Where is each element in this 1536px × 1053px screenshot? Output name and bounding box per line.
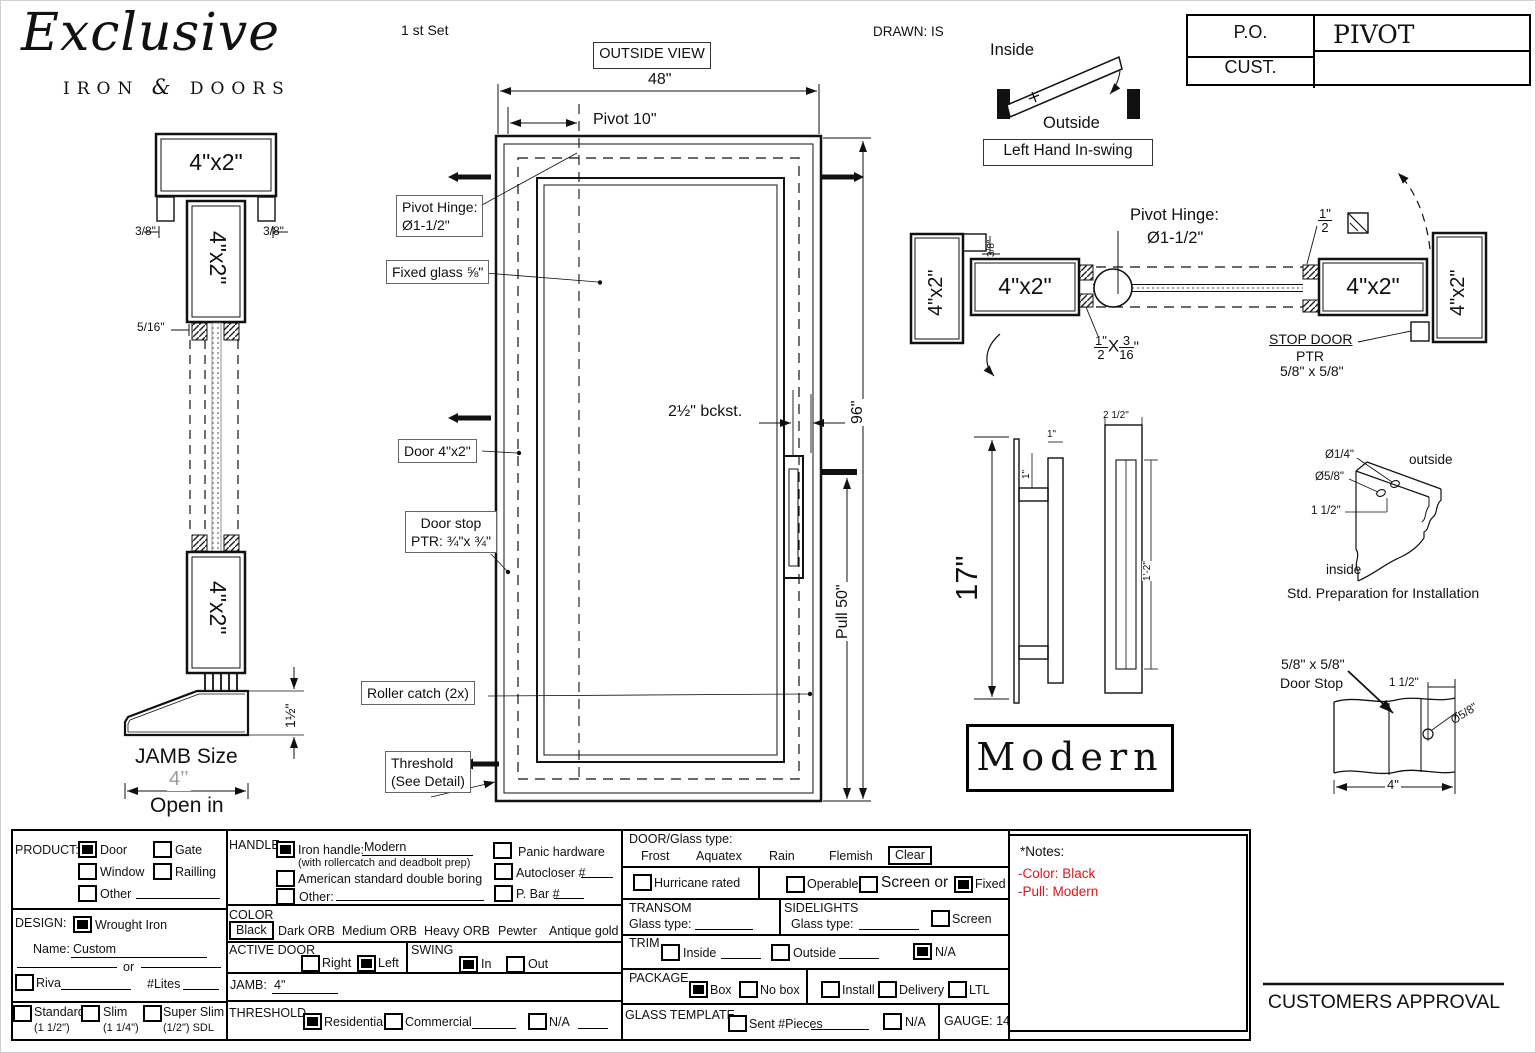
form-section-frame-type: Standard (1 1/2") Slim (1 1/4") Super Sl… (11, 1003, 228, 1041)
pull-detail-linework (974, 417, 1158, 703)
checkbox-iron-handle[interactable] (276, 841, 295, 858)
label-trim-na: N/A (935, 945, 956, 959)
label-no-box: No box (760, 983, 800, 997)
sidelights-label: SIDELIGHTS (784, 901, 858, 915)
checkbox-wrought-iron[interactable] (73, 916, 92, 933)
jamb-bottom-size: 4"x2" (204, 581, 231, 634)
label-product-other: Other (100, 887, 131, 901)
checkbox-american-boring[interactable] (276, 870, 295, 887)
color-dark-orb[interactable]: Dark ORB (278, 924, 335, 938)
jamb-dim-left: 3/8" (135, 224, 156, 238)
jamb-threshold-dim: 1½" (282, 704, 298, 728)
plan-hinge-line2: Ø1-1/2" (1147, 229, 1203, 248)
elevation-pull-dim: Pull 50" (834, 582, 852, 641)
checkbox-screen-or[interactable] (859, 876, 878, 893)
checkbox-gate[interactable] (153, 841, 172, 858)
form-section-glass-template: GLASS TEMPLATE Sent #Pieces N/A (621, 1003, 940, 1041)
label-out: Out (528, 957, 548, 971)
swing-inside-label: Inside (990, 41, 1034, 60)
swing-label: SWING (411, 943, 453, 957)
stop-detail-label1: 5/8" x 5/8" (1281, 656, 1345, 672)
roller-catch-callout: Roller catch (2x) (361, 681, 475, 705)
swing-caption: Left Hand In-swing (983, 139, 1153, 166)
iron-handle-note: (with rollercatch and deadbolt prep) (298, 857, 470, 869)
design-name-label: Name: (33, 942, 70, 956)
ptr-frac2-d: 16 (1119, 348, 1133, 361)
label-super-slim: Super Slim (163, 1005, 224, 1019)
form-section-product: PRODUCT: Door Gate Window Railling Other (11, 829, 228, 910)
logo-title: Exclusive (21, 3, 280, 63)
checkbox-super-slim[interactable] (143, 1005, 162, 1022)
transom-label: TRANSOM (629, 901, 692, 915)
prep-hole-big-dim: Ø5/8" (1315, 471, 1344, 483)
form-section-jamb: JAMB: 4" (226, 972, 623, 1002)
jamb-dim-glass: 5/16" (137, 320, 165, 334)
plan-jamb-left-size: 4"x2" (925, 270, 948, 316)
color-label: COLOR (229, 908, 273, 922)
stop-detail-linework (1334, 671, 1457, 794)
or-divider-right (141, 966, 221, 968)
door-size-callout: Door 4"x2" (398, 439, 477, 463)
jamb-label: JAMB: (230, 978, 267, 992)
checkbox-hurricane[interactable] (633, 874, 652, 891)
notes-label: *Notes: (1020, 844, 1064, 859)
glass-rain[interactable]: Rain (769, 849, 795, 863)
label-screen-or: Screen or (881, 874, 948, 892)
label-residential: Residential (324, 1015, 386, 1029)
fixed-glass-callout: Fixed glass ⅝" (386, 260, 489, 284)
plan-dim-38: 3/8" (986, 240, 997, 257)
threshold-label: THRESHOLD (229, 1006, 306, 1020)
label-door: Door (100, 843, 127, 857)
glass-template-label: GLASS TEMPLATE (625, 1008, 735, 1022)
checkbox-install[interactable] (821, 981, 840, 998)
trim-label: TRIM (629, 936, 660, 950)
checkbox-commercial[interactable] (384, 1013, 403, 1030)
glass-flemish[interactable]: Flemish (829, 849, 873, 863)
gauge-label: GAUGE: 14 (944, 1014, 1010, 1028)
form-section-active-door: ACTIVE DOOR Right Left (226, 941, 408, 974)
checkbox-threshold-na[interactable] (528, 1013, 547, 1030)
checkbox-railling[interactable] (153, 863, 172, 880)
trim-outside-input[interactable] (839, 957, 879, 959)
label-slim-sub: (1 1/4") (103, 1022, 139, 1034)
riva-input[interactable] (61, 988, 131, 990)
stop-detail-width-dim: 4" (1385, 777, 1401, 792)
pivot-hinge-line2: Ø1-1/2" (402, 216, 477, 234)
gap-frac-numerator: 1" (1318, 207, 1332, 221)
checkbox-right[interactable] (301, 955, 320, 972)
checkbox-standard[interactable] (13, 1005, 32, 1022)
label-standard-sub: (1 1/2") (34, 1022, 70, 1034)
pivot-hinge-callout: Pivot Hinge: Ø1-1/2" (396, 195, 483, 237)
swing-diagram-linework (997, 57, 1140, 119)
label-left: Left (378, 956, 399, 970)
label-panic-hardware: Panic hardware (518, 845, 605, 859)
elevation-width-dim: 48" (646, 71, 673, 89)
logo-ampersand-icon: & (152, 75, 178, 99)
stop-door-line3: 5/8" x 5/8" (1280, 363, 1344, 379)
form-section-glazing: Operable Screen or Fixed (758, 866, 1010, 900)
logo-word-iron: IRON (63, 79, 139, 99)
checkbox-sent-pieces[interactable] (728, 1015, 747, 1032)
elevation-backset-dim: 2½" bckst. (668, 403, 742, 421)
transom-glass-input[interactable] (695, 928, 753, 930)
form-section-handle: HANDLE Iron handle: Modern (with rollerc… (226, 829, 623, 906)
threshold-na-input[interactable] (578, 1027, 608, 1029)
plan-gap-fraction: 1"2 (1318, 207, 1332, 234)
form-section-trim: TRIM Inside Outside N/A (621, 934, 1010, 970)
stop-detail-offset-dim: 1 1/2" (1389, 677, 1419, 689)
product-label: PRODUCT: (15, 843, 79, 857)
label-right: Right (322, 956, 351, 970)
stop-door-line1: STOP DOOR (1269, 331, 1353, 347)
checkbox-sidelights-screen[interactable] (931, 910, 950, 927)
label-operable: Operable (807, 877, 858, 891)
checkbox-in[interactable] (459, 956, 478, 973)
form-section-design: DESIGN: Wrought Iron Name: Custom or Riv… (11, 908, 228, 1003)
label-commercial: Commercial (405, 1015, 472, 1029)
sidelights-glass-label: Glass type: (791, 917, 854, 931)
notes-box: *Notes: -Color: Black -Pull: Modern (1008, 834, 1248, 1032)
label-sidelights-screen: Screen (952, 912, 992, 926)
form-section-sidelights: SIDELIGHTS Glass type: Screen (779, 898, 1010, 936)
form-section-glass-type: DOOR/Glass type: Frost Aquatex Rain Flem… (621, 829, 1010, 868)
glass-aquatex[interactable]: Aquatex (696, 849, 742, 863)
design-label: DESIGN: (15, 916, 66, 930)
plan-hinge-line1: Pivot Hinge: (1130, 206, 1219, 225)
label-american-boring: American standard double boring (298, 872, 482, 886)
package-label: PACKAGE (629, 971, 689, 985)
checkbox-out[interactable] (506, 956, 525, 973)
stop-detail-label2: Door Stop (1280, 675, 1343, 691)
swing-outside-label: Outside (1043, 114, 1100, 133)
checkbox-autocloser[interactable] (494, 863, 513, 880)
cust-value[interactable] (1315, 52, 1531, 83)
title-block: P.O. PIVOT CUST. (1186, 14, 1531, 86)
prep-hole-small-dim: Ø1/4" (1325, 449, 1354, 461)
label-delivery: Delivery (899, 983, 944, 997)
handle-other-input[interactable] (336, 899, 484, 901)
label-autocloser: Autocloser # (516, 866, 585, 880)
sidelights-glass-input[interactable] (859, 928, 919, 930)
pull-style-name: Modern (966, 724, 1174, 792)
label-threshold-na: N/A (549, 1015, 570, 1029)
checkbox-ltl[interactable] (948, 981, 967, 998)
design-name-value[interactable]: Custom (71, 942, 207, 958)
checkbox-window[interactable] (78, 863, 97, 880)
pull-offset-side-dim: 1" (1021, 470, 1032, 479)
product-other-input[interactable] (136, 897, 220, 899)
cust-label: CUST. (1188, 52, 1315, 88)
handle-label: HANDLE (229, 838, 280, 852)
glass-selected[interactable]: Clear (888, 846, 932, 865)
drawn-label: DRAWN: IS (873, 24, 944, 39)
label-in: In (481, 957, 491, 971)
form-section-threshold: THRESHOLD Residential Commercial N/A (226, 1000, 623, 1041)
color-selected[interactable]: Black (229, 921, 274, 940)
design-or-label: or (123, 960, 134, 974)
elevation-linework (431, 84, 871, 801)
checkbox-pbar[interactable] (494, 885, 513, 902)
pull-height-dim: 17" (949, 556, 985, 602)
checkbox-trim-inside[interactable] (661, 944, 680, 961)
label-install: Install (842, 983, 875, 997)
checkbox-fixed[interactable] (954, 876, 973, 893)
commercial-input[interactable] (472, 1027, 516, 1029)
label-wrought-iron: Wrought Iron (95, 918, 167, 932)
color-medium-orb[interactable]: Medium ORB (342, 924, 417, 938)
notes-line-color: -Color: Black (1018, 866, 1095, 881)
ptr-frac1-n: 1" (1094, 334, 1108, 348)
jamb-mid-size: 4"x2" (204, 231, 231, 284)
gap-frac-denominator: 2 (1318, 221, 1332, 234)
door-stop-callout: Door stop PTR: ¾"x ¾" (405, 511, 497, 553)
pivot-hinge-line1: Pivot Hinge: (402, 198, 477, 216)
prep-outside-label: outside (1409, 452, 1453, 467)
ptr-frac1-d: 2 (1094, 348, 1108, 361)
logo-subtitle: IRON & DOORS (63, 75, 291, 99)
lites-label: #Lites (147, 977, 180, 991)
checkbox-product-other[interactable] (78, 885, 97, 902)
checkbox-operable[interactable] (786, 876, 805, 893)
plan-jamb-right-size: 4"x2" (1447, 270, 1470, 316)
jamb-size-dim: 4’’ (167, 768, 191, 791)
open-in-label: Open in (150, 794, 224, 818)
outside-view-label: OUTSIDE VIEW (593, 42, 711, 69)
trim-inside-input[interactable] (721, 957, 761, 959)
or-divider-left (17, 966, 117, 968)
checkbox-box[interactable] (689, 981, 708, 998)
notes-line-pull: -Pull: Modern (1018, 884, 1098, 899)
label-iron-handle: Iron handle: (298, 843, 364, 857)
label-riva: Riva (36, 976, 61, 990)
form-section-swing: SWING In Out (406, 941, 623, 974)
prep-caption: Std. Preparation for Installation (1287, 585, 1479, 601)
ptr-frac2-n: 3 (1119, 334, 1133, 348)
label-fixed: Fixed (975, 877, 1006, 891)
form-section-gauge: GAUGE: 14 (938, 1003, 1010, 1041)
label-trim-outside: Outside (793, 946, 836, 960)
checkbox-trim-outside[interactable] (771, 944, 790, 961)
checkbox-riva[interactable] (15, 974, 34, 991)
jamb-dim-right: 3/8" (263, 224, 284, 238)
customers-approval-label: CUSTOMERS APPROVAL (1263, 991, 1505, 1014)
checkbox-door[interactable] (78, 841, 97, 858)
checkbox-residential[interactable] (303, 1013, 322, 1030)
form-section-package: PACKAGE Box No box (621, 968, 808, 1005)
label-ltl: LTL (969, 983, 990, 997)
threshold-line2: (See Detail) (391, 772, 465, 790)
set-label: 1 st Set (401, 22, 448, 38)
threshold-line1: Threshold (391, 754, 465, 772)
pbar-input[interactable] (554, 897, 584, 899)
form-section-color: COLOR Black Dark ORB Medium ORB Heavy OR… (226, 904, 623, 943)
drawing-sheet: Exclusive IRON & DOORS 1 st Set OUTSIDE … (0, 0, 1536, 1053)
glass-frost[interactable]: Frost (641, 849, 669, 863)
iron-handle-value[interactable]: Modern (362, 840, 473, 856)
label-railling: Railling (175, 865, 216, 879)
checkbox-template-na[interactable] (883, 1013, 902, 1030)
po-value: PIVOT (1315, 16, 1531, 52)
color-pewter[interactable]: Pewter (498, 924, 537, 938)
checkbox-trim-na[interactable] (913, 943, 932, 960)
label-handle-other: Other: (299, 890, 334, 904)
label-window: Window (100, 865, 144, 879)
checkbox-slim[interactable] (81, 1005, 100, 1022)
plan-door-left-size: 4"x2" (971, 273, 1079, 300)
label-gate: Gate (175, 843, 202, 857)
jamb-value[interactable]: 4" (272, 978, 338, 994)
jamb-top-size: 4"x2" (156, 149, 276, 176)
color-antique-gold[interactable]: Antique gold (549, 924, 619, 938)
label-template-na: N/A (905, 1015, 926, 1029)
checkbox-left[interactable] (357, 955, 376, 972)
form-section-package-delivery: Install Delivery LTL (806, 968, 1010, 1005)
ptr-frac-quote: " (1134, 338, 1139, 355)
prep-offset-dim: 1 1/2" (1311, 505, 1341, 517)
checkbox-panic-hardware[interactable] (493, 842, 512, 859)
label-box: Box (710, 983, 732, 997)
checkbox-handle-other[interactable] (276, 888, 295, 905)
checkbox-delivery[interactable] (878, 981, 897, 998)
door-stop-line2: PTR: ¾"x ¾" (411, 532, 491, 550)
prep-inside-label: inside (1326, 562, 1361, 577)
transom-glass-label: Glass type: (629, 917, 692, 931)
lites-input[interactable] (183, 988, 219, 990)
form-section-hurricane: Hurricane rated (621, 866, 760, 900)
plan-door-right-size: 4"x2" (1319, 273, 1427, 300)
stop-door-line2: PTR (1296, 348, 1324, 364)
glass-type-label: DOOR/Glass type: (629, 832, 733, 846)
logo-word-doors: DOORS (190, 79, 291, 99)
label-super-slim-sub: (1/2") SDL (163, 1022, 214, 1034)
jamb-size-label: JAMB Size (135, 745, 238, 769)
plan-ptr-dim: 1"2X316" (1094, 334, 1139, 361)
form-section-transom: TRANSOM Glass type: (621, 898, 781, 936)
color-heavy-orb[interactable]: Heavy ORB (424, 924, 490, 938)
checkbox-no-box[interactable] (739, 981, 758, 998)
pull-length-dim: 1'-2" (1142, 561, 1153, 581)
sent-pieces-input[interactable] (811, 1028, 869, 1030)
label-hurricane: Hurricane rated (654, 876, 740, 890)
label-slim: Slim (103, 1005, 127, 1019)
label-standard: Standard (34, 1005, 85, 1019)
pull-width-dim: 2 1/2" (1103, 410, 1129, 421)
threshold-callout: Threshold (See Detail) (385, 751, 471, 793)
elevation-height-dim: 96" (849, 399, 867, 426)
door-stop-line1: Door stop (411, 514, 491, 532)
elevation-pivot-dim: Pivot 10" (593, 111, 657, 129)
label-trim-inside: Inside (683, 946, 716, 960)
autocloser-input[interactable] (581, 876, 613, 878)
ptr-frac-x: X (1108, 336, 1119, 355)
pull-offset-top-dim: 1" (1047, 429, 1056, 440)
